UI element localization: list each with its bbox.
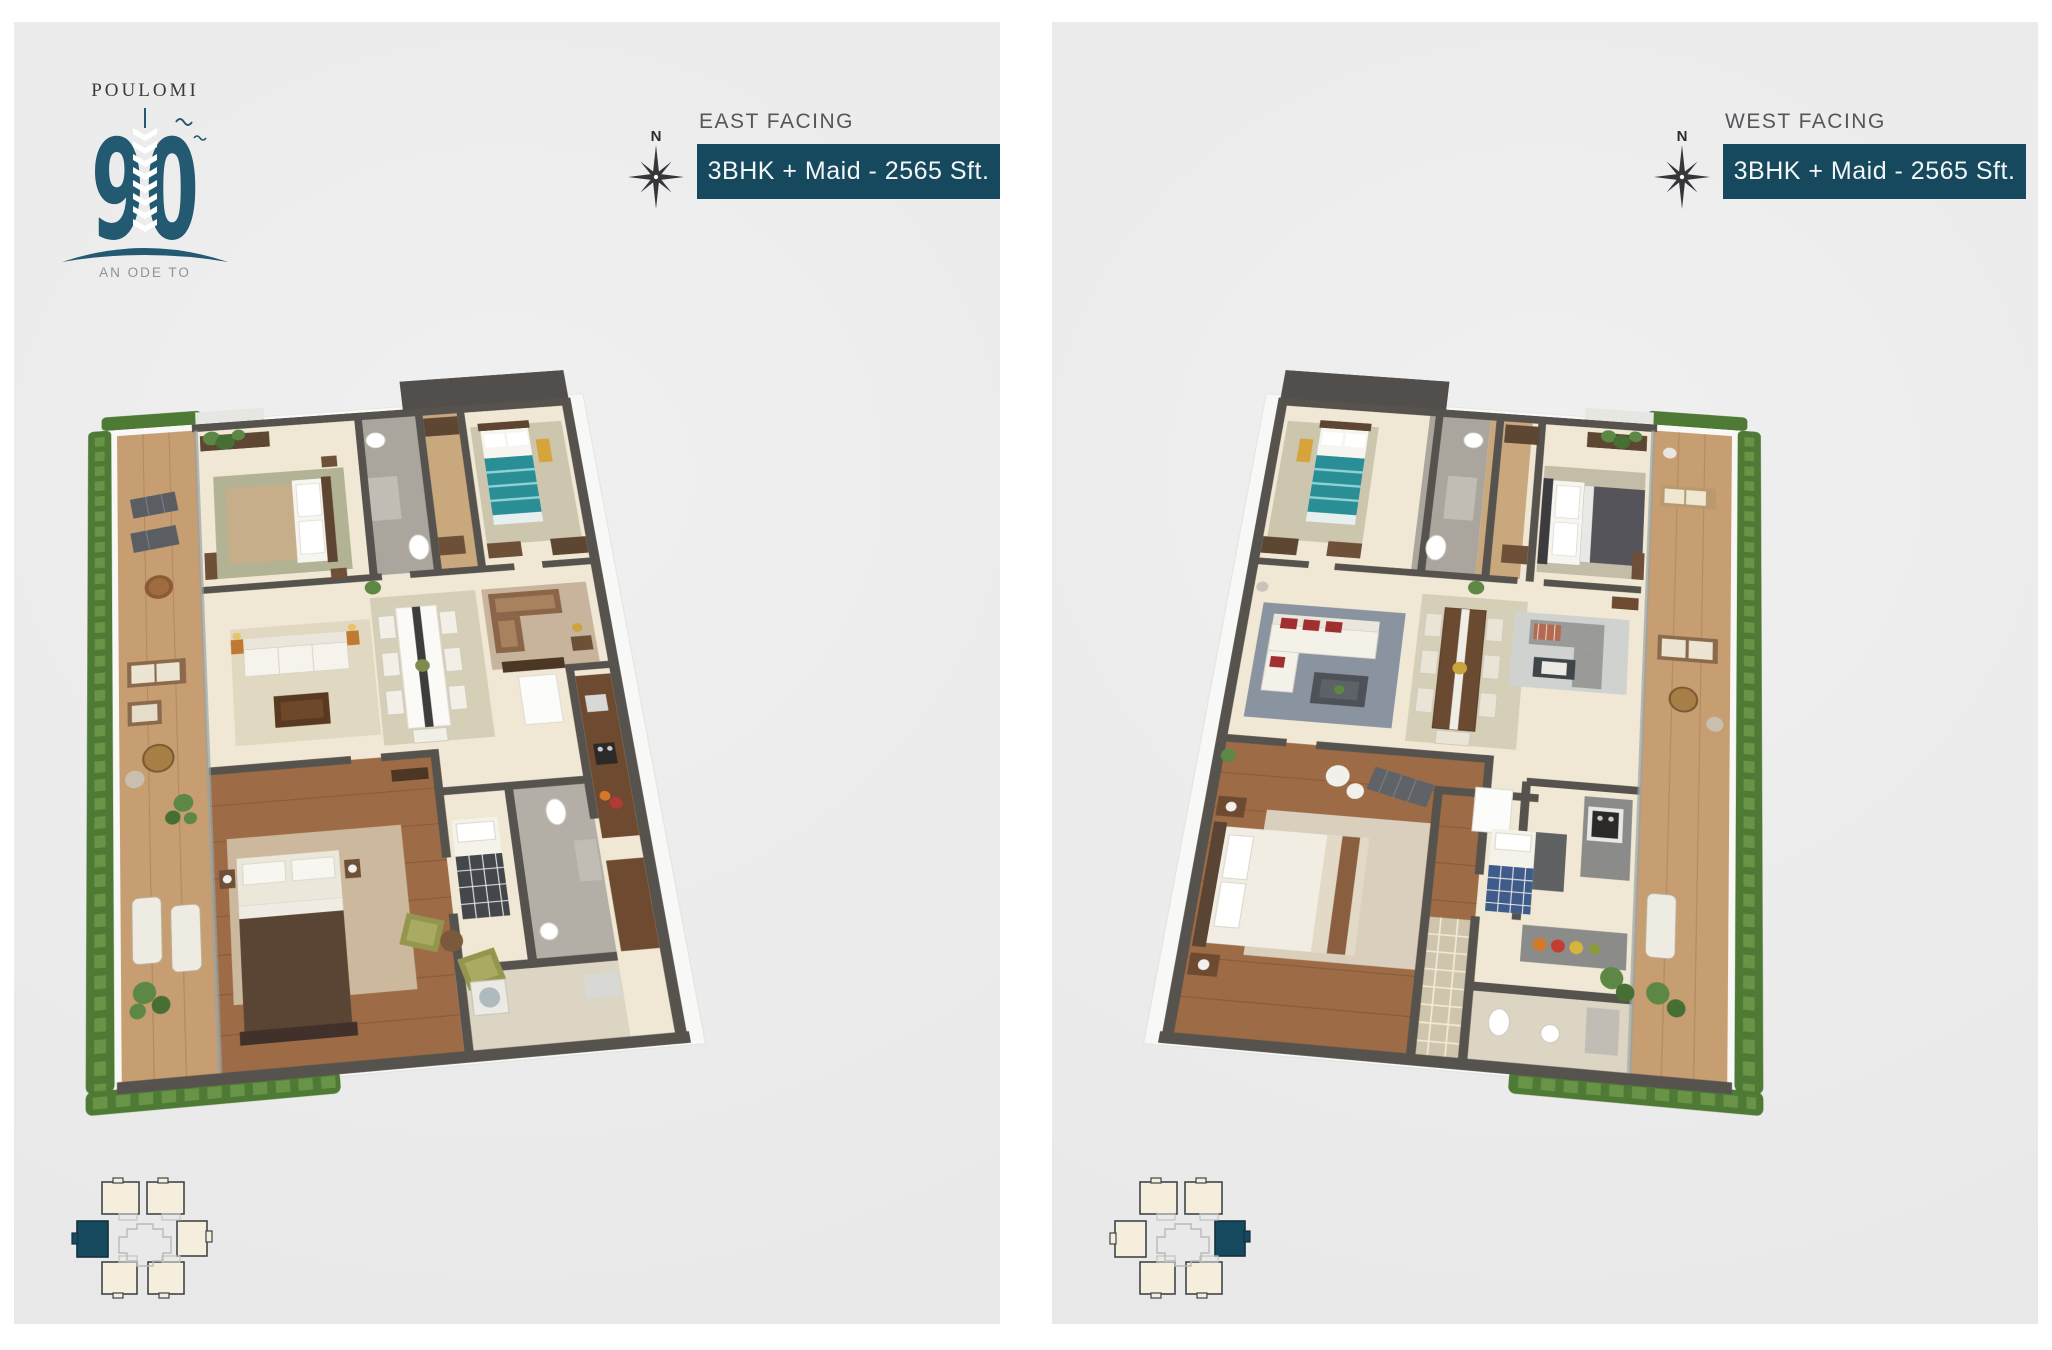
living-room bbox=[230, 619, 381, 746]
logo-tagline-1: AN ODE TO bbox=[99, 265, 191, 280]
facing-label: EAST FACING bbox=[699, 110, 854, 134]
unit-locator-map bbox=[1107, 1177, 1257, 1305]
east-facing-panel: POULOMI 90 AN ODE TO PERFECTION. bbox=[14, 22, 1000, 1324]
west-plan-stage bbox=[1052, 306, 2038, 1136]
east-plan-stage bbox=[14, 306, 1000, 1136]
spec-banner: 3BHK + Maid - 2565 Sft. bbox=[1723, 144, 2026, 199]
compass-north-label: N bbox=[651, 128, 662, 145]
east-floor-plan bbox=[81, 365, 742, 1153]
spec-banner: 3BHK + Maid - 2565 Sft. bbox=[697, 144, 1000, 199]
dining-area bbox=[370, 590, 495, 746]
unit-locator-map bbox=[69, 1177, 219, 1305]
family-lounge bbox=[481, 582, 600, 674]
dining-area bbox=[1405, 594, 1528, 750]
compass-north-label: N bbox=[1677, 128, 1688, 145]
highlighted-unit bbox=[77, 1221, 108, 1257]
highlighted-unit bbox=[1215, 1221, 1245, 1256]
west-facing-panel: WEST FACING 3BHK + Maid - 2565 Sft. N bbox=[1052, 22, 2038, 1324]
compass-rose-icon: N bbox=[1652, 125, 1712, 209]
west-floor-plan bbox=[1108, 365, 1769, 1153]
compass-rose-icon: N bbox=[626, 125, 686, 209]
brochure-page: POULOMI 90 AN ODE TO PERFECTION. bbox=[0, 0, 2052, 1350]
logo-tower-spire bbox=[144, 108, 146, 128]
facing-label: WEST FACING bbox=[1725, 110, 1886, 134]
logo-brand-text: POULOMI bbox=[91, 80, 199, 101]
maid-room bbox=[1485, 828, 1536, 914]
poulomi-90-logo: POULOMI 90 AN ODE TO PERFECTION. bbox=[60, 66, 230, 281]
